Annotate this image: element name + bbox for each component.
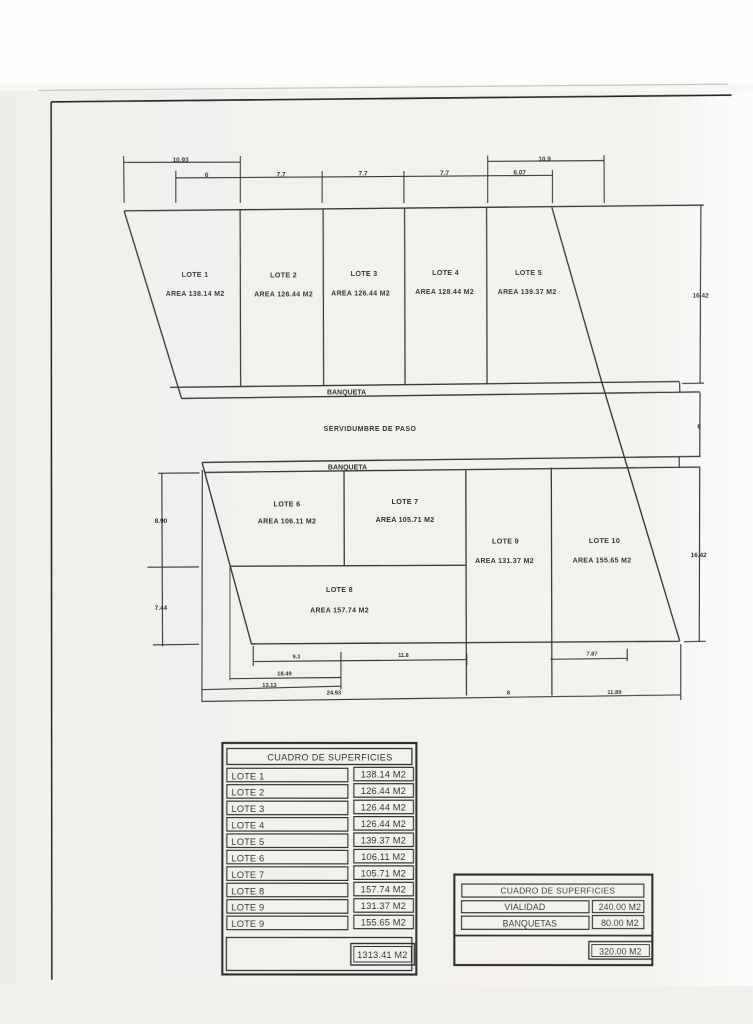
svg-text:155.65 M2: 155.65 M2 — [361, 917, 406, 928]
svg-text:AREA 155.65 M2: AREA 155.65 M2 — [573, 558, 632, 565]
svg-text:LOTE 10: LOTE 10 — [589, 536, 620, 545]
svg-text:126.44 M2: 126.44 M2 — [361, 802, 406, 813]
svg-text:SERVIDUMBRE DE PASO: SERVIDUMBRE DE PASO — [324, 426, 417, 433]
svg-text:BANQUETAS: BANQUETAS — [503, 919, 558, 929]
svg-text:LOTE 1: LOTE 1 — [231, 770, 264, 781]
svg-text:131.37 M2: 131.37 M2 — [361, 900, 406, 911]
svg-text:16.42: 16.42 — [691, 552, 707, 559]
svg-text:AREA 131.37 M2: AREA 131.37 M2 — [475, 558, 534, 565]
svg-text:105.71 M2: 105.71 M2 — [361, 867, 406, 878]
svg-text:LOTE 3: LOTE 3 — [231, 803, 264, 814]
svg-text:LOTE 4: LOTE 4 — [231, 820, 264, 831]
svg-text:7.7: 7.7 — [277, 171, 286, 178]
svg-text:LOTE 6: LOTE 6 — [274, 499, 301, 508]
svg-text:11.8: 11.8 — [398, 653, 409, 659]
svg-text:7.44: 7.44 — [155, 605, 168, 612]
svg-text:BANQUETA: BANQUETA — [328, 464, 367, 471]
svg-text:24.93: 24.93 — [327, 691, 342, 697]
svg-text:AREA 126.44 M2: AREA 126.44 M2 — [331, 290, 390, 297]
svg-text:18.49: 18.49 — [277, 672, 292, 678]
svg-text:9.3: 9.3 — [293, 655, 301, 661]
svg-text:7.7: 7.7 — [440, 170, 449, 177]
svg-text:320.00 M2: 320.00 M2 — [599, 947, 641, 957]
svg-text:7.87: 7.87 — [587, 651, 598, 657]
svg-text:LOTE 3: LOTE 3 — [351, 269, 378, 278]
svg-text:VIALIDAD: VIALIDAD — [504, 902, 545, 912]
svg-text:106.11 M2: 106.11 M2 — [361, 851, 406, 862]
svg-text:139.37 M2: 139.37 M2 — [361, 834, 406, 845]
svg-text:LOTE 9: LOTE 9 — [231, 918, 264, 929]
svg-text:LOTE 5: LOTE 5 — [231, 836, 264, 847]
svg-text:LOTE 9: LOTE 9 — [231, 902, 264, 913]
svg-text:6: 6 — [205, 172, 209, 179]
svg-text:CUADRO DE SUPERFICIES: CUADRO DE SUPERFICIES — [500, 886, 615, 896]
svg-text:80.00 M2: 80.00 M2 — [601, 918, 638, 928]
svg-text:8.90: 8.90 — [155, 518, 168, 525]
svg-text:138.14 M2: 138.14 M2 — [361, 769, 406, 780]
svg-text:157.74 M2: 157.74 M2 — [361, 884, 406, 895]
svg-text:LOTE 2: LOTE 2 — [270, 270, 297, 279]
svg-text:11.89: 11.89 — [607, 690, 622, 696]
svg-text:126.44 M2: 126.44 M2 — [361, 785, 406, 796]
svg-text:LOTE 7: LOTE 7 — [231, 869, 264, 880]
svg-text:LOTE 7: LOTE 7 — [392, 497, 419, 506]
svg-text:LOTE 6: LOTE 6 — [231, 852, 264, 863]
svg-text:LOTE 1: LOTE 1 — [182, 270, 209, 279]
svg-text:AREA 138.14 M2: AREA 138.14 M2 — [166, 291, 225, 298]
svg-text:LOTE 4: LOTE 4 — [432, 268, 459, 277]
svg-text:CUADRO DE SUPERFICIES: CUADRO DE SUPERFICIES — [267, 752, 392, 762]
svg-text:LOTE 8: LOTE 8 — [231, 885, 264, 896]
svg-text:AREA 157.74 M2: AREA 157.74 M2 — [310, 607, 369, 614]
svg-text:6.07: 6.07 — [513, 170, 526, 177]
svg-text:240.00 M2: 240.00 M2 — [599, 902, 641, 912]
svg-text:LOTE 8: LOTE 8 — [326, 585, 353, 594]
svg-text:7.7: 7.7 — [359, 171, 368, 178]
svg-text:AREA 106.11 M2: AREA 106.11 M2 — [258, 518, 316, 525]
svg-text:LOTE 5: LOTE 5 — [515, 268, 542, 277]
svg-text:13.13: 13.13 — [262, 683, 277, 689]
svg-text:LOTE 2: LOTE 2 — [231, 787, 264, 798]
svg-text:1313.41 M2: 1313.41 M2 — [357, 949, 408, 960]
svg-text:6: 6 — [697, 423, 701, 430]
svg-text:LOTE 9: LOTE 9 — [492, 537, 519, 546]
svg-text:10.9: 10.9 — [538, 156, 551, 163]
svg-text:126.44 M2: 126.44 M2 — [361, 818, 406, 829]
svg-text:AREA 128.44 M2: AREA 128.44 M2 — [415, 289, 474, 296]
svg-text:16.42: 16.42 — [693, 293, 709, 300]
svg-text:AREA 139.37 M2: AREA 139.37 M2 — [498, 289, 557, 296]
svg-text:BANQUETA: BANQUETA — [327, 390, 366, 397]
svg-text:10.93: 10.93 — [173, 157, 189, 164]
svg-text:AREA 105.71 M2: AREA 105.71 M2 — [376, 517, 435, 524]
svg-text:AREA 126.44 M2: AREA 126.44 M2 — [254, 291, 313, 298]
